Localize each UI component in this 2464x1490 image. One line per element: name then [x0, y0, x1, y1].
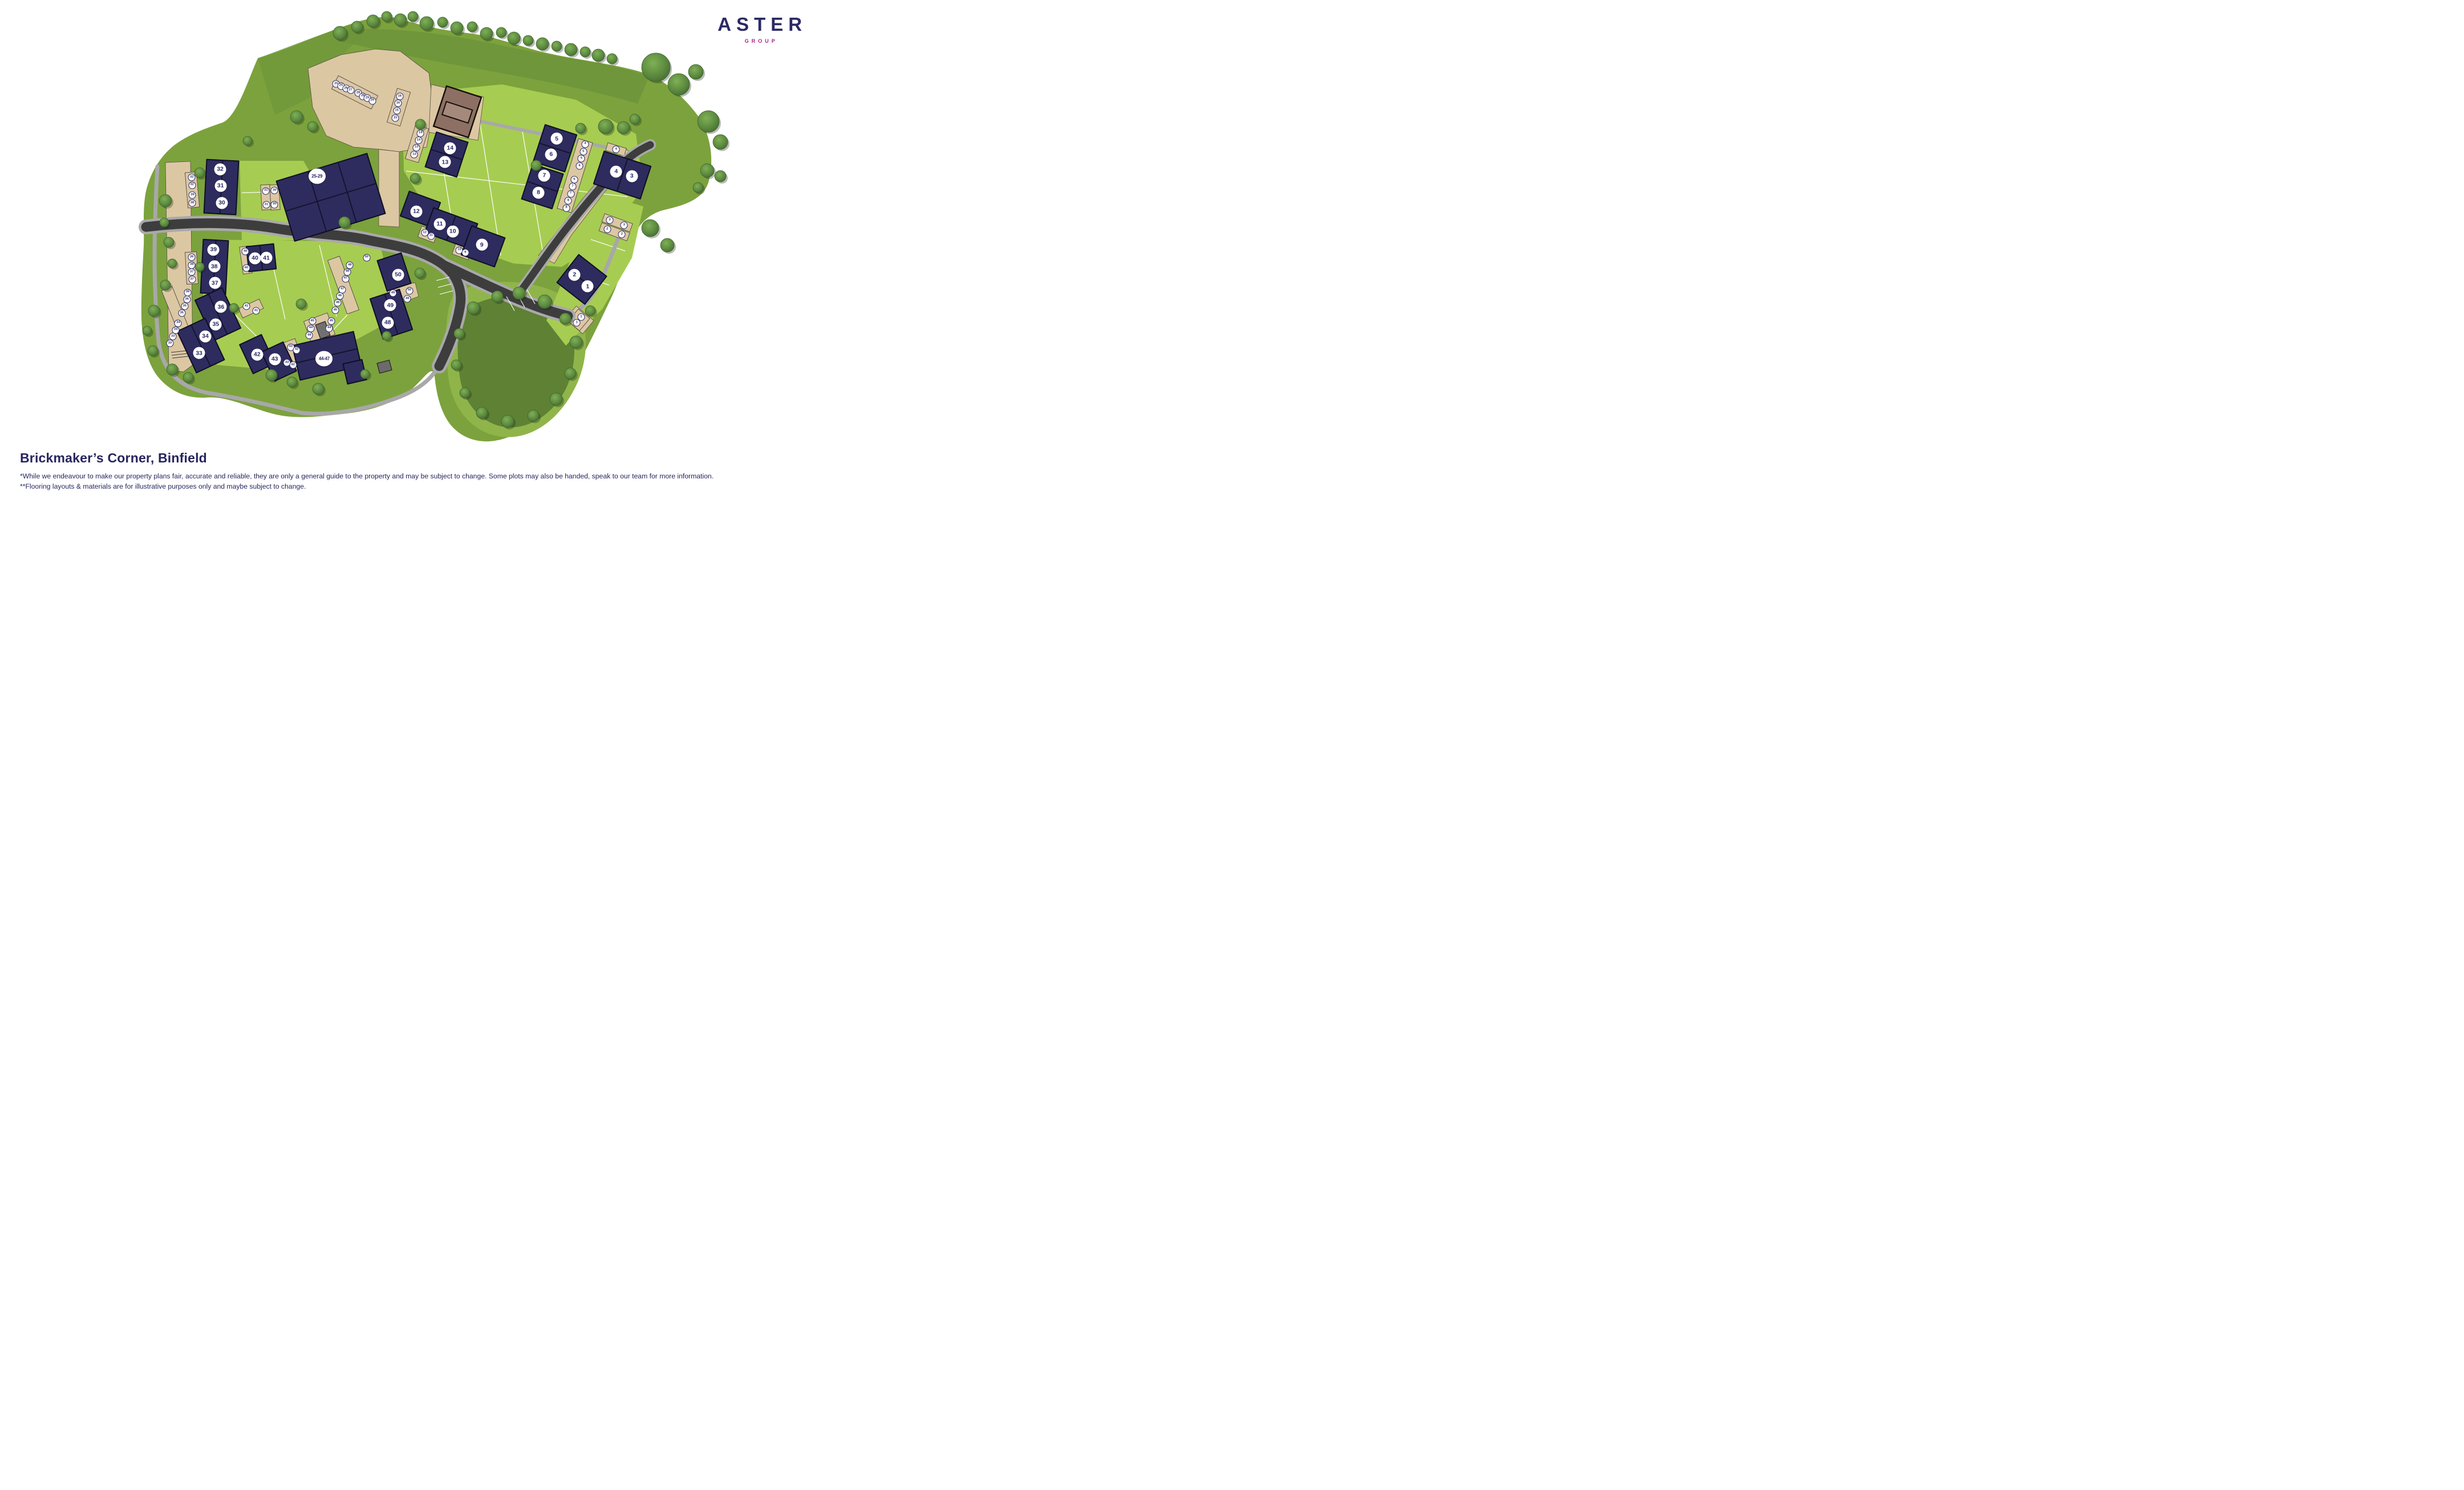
plot-marker-7[interactable]: 7 [538, 169, 550, 181]
parking-marker-41: 41 [243, 302, 250, 310]
parking-marker-32: 32 [188, 174, 196, 181]
parking-marker-14: 14 [415, 136, 422, 144]
plot-marker-12[interactable]: 12 [410, 206, 422, 218]
tree-icon [598, 119, 613, 134]
parking-marker-6: 6 [576, 163, 583, 170]
tree-icon [451, 22, 463, 34]
parking-marker-13: 13 [411, 151, 418, 159]
tree-icon [460, 388, 470, 398]
parking-marker-45: 45 [331, 307, 339, 314]
plot-marker-32[interactable]: 32 [214, 163, 226, 175]
tree-icon [492, 291, 503, 302]
parking-marker-45: 45 [309, 318, 316, 325]
tree-icon [159, 194, 172, 207]
tree-icon [630, 114, 640, 124]
tree-icon [501, 415, 514, 428]
parking-marker-7: 7 [567, 190, 574, 197]
tree-icon [164, 237, 174, 247]
plot-marker-36[interactable]: 36 [215, 301, 227, 313]
tree-icon [607, 54, 617, 64]
tree-icon [538, 295, 552, 308]
parking-marker-2: 2 [603, 226, 611, 233]
parking-marker-30: 30 [271, 187, 278, 194]
tree-icon [523, 35, 533, 46]
plot-marker-33[interactable]: 33 [193, 347, 205, 359]
tree-icon [296, 299, 306, 309]
tree-icon [528, 410, 539, 421]
tree-icon [243, 136, 252, 145]
parking-marker-41: 41 [252, 307, 260, 315]
parking-marker-16: 16 [396, 92, 403, 100]
tree-icon [408, 11, 418, 22]
parking-marker-3: 3 [621, 221, 628, 229]
tree-icon [367, 15, 379, 27]
brand-name: ASTER [718, 14, 807, 35]
tree-icon [143, 326, 152, 335]
tree-icon [148, 346, 158, 356]
tree-icon [467, 22, 477, 32]
parking-marker-39: 39 [189, 192, 196, 199]
parking-marker-39: 39 [188, 254, 195, 261]
parking-marker-5: 5 [579, 148, 587, 156]
parking-marker-46: 46 [334, 299, 342, 307]
plot-marker-14[interactable]: 14 [444, 142, 456, 154]
parking-marker-50: 50 [406, 287, 413, 294]
development-title: Brickmaker’s Corner, Binfield [20, 450, 813, 466]
parking-marker-9: 9 [461, 249, 469, 256]
page: 123456789101112131425-293031323334353637… [0, 0, 821, 497]
tree-icon [351, 21, 363, 33]
parking-marker-42: 42 [293, 346, 301, 354]
tree-icon [496, 27, 506, 38]
plot-marker-1[interactable]: 1 [582, 281, 594, 293]
disclaimer-line-1: *While we endeavour to make our property… [20, 472, 813, 482]
parking-marker-13: 13 [413, 144, 420, 151]
parking-marker-31: 31 [262, 201, 270, 209]
tree-icon [698, 111, 719, 132]
parking-marker-32: 32 [188, 181, 196, 189]
parking-marker-31: 31 [262, 187, 270, 194]
tree-icon [592, 49, 605, 62]
tree-icon [565, 43, 577, 56]
plot-marker-43[interactable]: 43 [269, 353, 281, 365]
tree-icon [513, 287, 525, 299]
tree-icon [617, 121, 630, 134]
plot-marker-6[interactable]: 6 [545, 148, 557, 160]
tree-icon [454, 328, 464, 339]
plot-marker-8[interactable]: 8 [533, 187, 545, 199]
parking-marker-16: 16 [394, 100, 402, 107]
tree-icon [195, 262, 204, 271]
parking-marker-47: 47 [342, 275, 349, 282]
tree-icon [266, 370, 277, 381]
tree-icon [476, 407, 488, 419]
tree-icon [194, 168, 205, 178]
parking-marker-44: 44 [306, 332, 313, 339]
parking-marker-27: 27 [347, 86, 354, 94]
tree-icon [531, 160, 541, 170]
parking-marker-33: 33 [169, 333, 177, 340]
tree-icon [585, 306, 595, 316]
tree-icon [290, 111, 303, 123]
tree-icon [394, 14, 407, 26]
plot-marker-37[interactable]: 37 [209, 277, 221, 289]
plot-marker-9[interactable]: 9 [476, 239, 488, 251]
parking-marker-37: 37 [188, 268, 196, 275]
tree-icon [382, 331, 391, 340]
plot-marker-41[interactable]: 41 [260, 252, 272, 264]
parking-marker-49: 49 [390, 289, 397, 297]
tree-icon [160, 218, 169, 227]
tree-icon [360, 370, 370, 379]
tree-icon [420, 17, 433, 30]
tree-icon [508, 32, 520, 44]
parking-marker-15: 15 [393, 107, 400, 114]
plot-marker-11[interactable]: 11 [433, 218, 445, 230]
parking-marker-4: 4 [582, 140, 589, 148]
tree-icon [688, 64, 703, 79]
site-plan-map [0, 0, 821, 497]
tree-icon [415, 268, 425, 278]
parking-marker-2: 2 [618, 231, 626, 238]
tree-icon [287, 377, 297, 387]
parking-marker-49: 49 [404, 295, 411, 303]
tree-icon [642, 53, 670, 82]
tree-icon [148, 305, 160, 316]
tree-icon [565, 368, 576, 379]
parking-marker-44: 44 [307, 324, 315, 332]
plot-marker-39[interactable]: 39 [208, 244, 220, 256]
parking-marker-14: 14 [417, 129, 424, 137]
caption-block: Brickmaker’s Corner, Binfield *While we … [20, 450, 813, 492]
tree-icon [160, 280, 171, 290]
brand-subname: GROUP [718, 38, 805, 44]
parking-marker-1: 1 [573, 319, 581, 327]
parking-marker-3: 3 [606, 217, 614, 224]
plot-marker-13[interactable]: 13 [439, 156, 451, 168]
tree-icon [410, 173, 420, 184]
plot-marker-49[interactable]: 49 [384, 299, 396, 311]
parking-marker-33: 33 [166, 340, 173, 347]
plot-marker-5[interactable]: 5 [551, 133, 563, 145]
tree-icon [480, 27, 493, 40]
parking-marker-30: 30 [271, 201, 278, 208]
plot-marker-4[interactable]: 4 [610, 166, 622, 178]
plot-marker-42[interactable]: 42 [251, 348, 263, 360]
aster-group-logo: ASTER GROUP [718, 14, 802, 44]
plot-marker-50[interactable]: 50 [392, 269, 404, 281]
plot-marker-35[interactable]: 35 [210, 319, 222, 331]
parking-marker-50: 50 [363, 254, 370, 261]
plot-marker-40[interactable]: 40 [249, 252, 261, 264]
parking-marker-29: 29 [368, 97, 376, 104]
plot-marker-31[interactable]: 31 [214, 180, 226, 192]
tree-icon [307, 121, 318, 132]
parking-marker-5: 5 [578, 155, 585, 163]
parking-marker-44: 44 [326, 324, 333, 332]
tree-icon [550, 393, 562, 405]
parking-marker-37: 37 [188, 276, 196, 283]
tree-icon [168, 259, 177, 268]
parking-marker-45: 45 [328, 318, 335, 325]
tree-icon [668, 74, 690, 95]
tree-icon [552, 41, 562, 51]
tree-icon [660, 238, 674, 252]
tree-icon [229, 303, 238, 312]
tree-icon [713, 135, 728, 149]
tree-icon [715, 170, 726, 182]
tree-icon [451, 360, 461, 370]
parking-marker-35: 35 [178, 310, 185, 317]
tree-icon [467, 302, 480, 314]
tree-icon [183, 372, 193, 383]
parking-marker-38: 38 [188, 199, 196, 206]
tree-icon [313, 383, 324, 395]
parking-marker-40: 40 [242, 265, 250, 272]
plot-marker-44-47[interactable]: 44-47 [315, 351, 333, 367]
tree-icon [642, 220, 659, 237]
plot-marker-3[interactable]: 3 [626, 170, 638, 182]
tree-icon [580, 47, 590, 57]
tree-icon [560, 313, 571, 324]
plot-marker-38[interactable]: 38 [208, 261, 220, 273]
parking-marker-7: 7 [569, 183, 576, 190]
plot-marker-10[interactable]: 10 [447, 225, 459, 237]
plot-marker-30[interactable]: 30 [216, 197, 228, 209]
tree-icon [570, 336, 582, 348]
parking-marker-40: 40 [242, 248, 249, 255]
site-plan: 123456789101112131425-293031323334353637… [0, 0, 821, 497]
plot-marker-25-29[interactable]: 25-29 [309, 169, 326, 184]
plot-marker-2[interactable]: 2 [569, 269, 581, 281]
tree-icon [437, 17, 448, 27]
tree-icon [415, 119, 425, 129]
tree-icon [693, 182, 703, 193]
parking-marker-6: 6 [570, 176, 578, 184]
parking-marker-8: 8 [563, 204, 570, 212]
parking-marker-38: 38 [188, 261, 196, 269]
tree-icon [333, 26, 347, 40]
parking-marker-15: 15 [392, 115, 399, 122]
parking-marker-4: 4 [613, 145, 620, 153]
parking-marker-42: 42 [289, 362, 297, 369]
tree-icon [536, 38, 549, 50]
tree-icon [339, 217, 350, 228]
tree-icon [382, 11, 392, 22]
parking-marker-11: 11 [427, 232, 435, 239]
plot-marker-34[interactable]: 34 [200, 331, 212, 343]
disclaimer-line-2: **Flooring layouts & materials are for i… [20, 482, 813, 492]
parking-marker-8: 8 [565, 197, 572, 205]
tree-icon [576, 123, 586, 133]
parking-marker-36: 36 [184, 289, 192, 296]
tree-icon [167, 364, 178, 375]
tree-icon [700, 164, 714, 177]
plot-marker-48[interactable]: 48 [382, 316, 394, 328]
